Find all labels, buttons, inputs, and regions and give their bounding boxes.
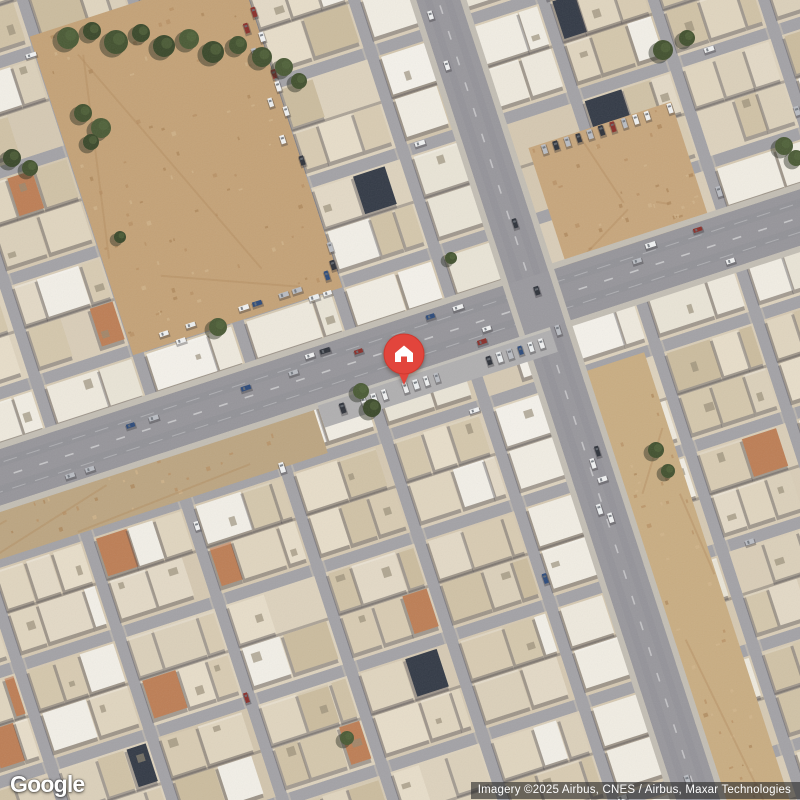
map-attribution: Imagery ©2025 Airbus, CNES / Airbus, Max… bbox=[471, 782, 800, 799]
satellite-imagery[interactable] bbox=[0, 0, 800, 800]
google-logo[interactable]: Google bbox=[10, 773, 84, 796]
map-viewport[interactable]: Google Imagery ©2025 Airbus, CNES / Airb… bbox=[0, 0, 800, 800]
location-marker[interactable] bbox=[380, 328, 428, 390]
